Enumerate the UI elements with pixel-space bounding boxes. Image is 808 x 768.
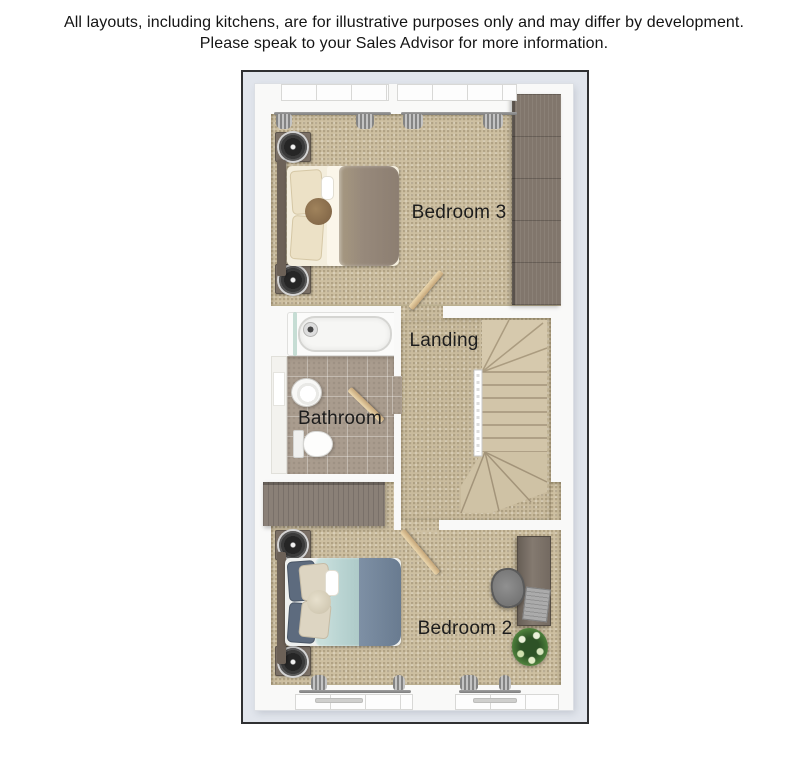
curtains-icon <box>403 114 423 129</box>
laptop <box>522 587 551 623</box>
plant <box>512 628 548 666</box>
doorway-bedroom2 <box>401 520 439 532</box>
table-lamp <box>279 133 307 161</box>
disclaimer-line-2: Please speak to your Sales Advisor for m… <box>0 33 808 54</box>
accent-cushion <box>307 590 331 614</box>
curtain-rail <box>459 690 521 693</box>
toilet <box>303 431 333 457</box>
bed-throw <box>359 558 401 646</box>
window-sill <box>473 698 517 703</box>
bedroom3-window-right <box>397 84 517 101</box>
shower-screen <box>293 312 297 356</box>
disclaimer-line-1: All layouts, including kitchens, are for… <box>0 12 808 33</box>
curtains-icon <box>393 675 405 690</box>
room-label-bedroom3: Bedroom 3 <box>412 202 507 224</box>
curtains-icon <box>276 114 292 129</box>
curtains-icon <box>356 114 374 129</box>
bed-duvet <box>339 166 399 266</box>
window-sill <box>315 698 363 703</box>
room-label-bedroom2: Bedroom 2 <box>418 618 513 640</box>
bath-tap-icon <box>303 322 318 337</box>
curtains-icon <box>499 675 511 690</box>
room-label-landing: Landing <box>409 330 478 352</box>
bedroom3-wardrobe <box>512 94 561 305</box>
basin <box>291 378 322 407</box>
curtains-icon <box>483 114 503 129</box>
bedroom3-window-left <box>281 84 389 101</box>
doorway-bedroom3 <box>401 306 443 320</box>
roll-pillow <box>325 570 339 596</box>
bed-headboard <box>277 160 286 276</box>
accent-cushion <box>305 198 332 225</box>
bedroom2-wardrobe <box>263 482 385 526</box>
roll-pillow <box>321 176 334 200</box>
vanity-shelf <box>273 372 285 406</box>
curtains-icon <box>311 675 327 690</box>
room-label-bathroom: Bathroom <box>298 408 382 430</box>
curtain-rail <box>299 690 411 693</box>
curtains-icon <box>460 675 478 690</box>
floorplan: Bedroom 3 Landing Bathroom Bedroom 2 <box>241 70 589 724</box>
disclaimer: All layouts, including kitchens, are for… <box>0 12 808 54</box>
doorway-bathroom <box>392 376 402 414</box>
